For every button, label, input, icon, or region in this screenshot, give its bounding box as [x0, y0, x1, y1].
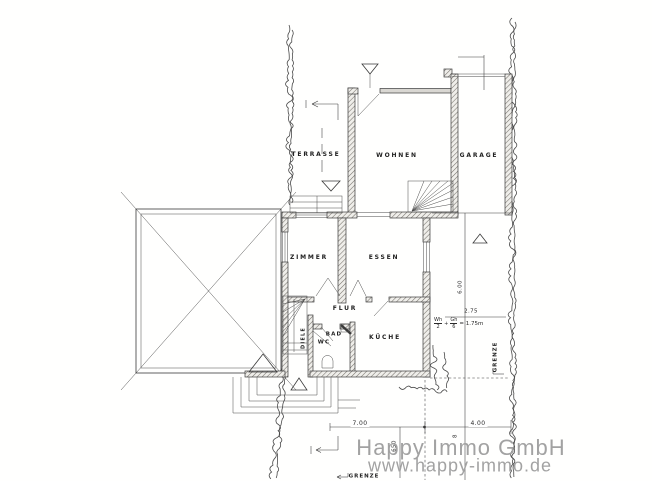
- terrace-entry-arrow: [306, 100, 338, 172]
- room-label-diele: DIELE: [302, 327, 307, 349]
- walls-upper-block: [348, 69, 512, 215]
- extension-outline: [121, 192, 296, 390]
- dimension-6m: 6.00: [458, 280, 464, 294]
- watermark-url: www.happy-immo.de: [368, 456, 552, 477]
- garage-triangle-icon: [473, 234, 487, 243]
- formula-fraction-gh: Gh6: [450, 318, 457, 330]
- grenze-label-right: GRENZE: [493, 342, 499, 373]
- grenze-arrow: [337, 473, 348, 479]
- dimension-7m: 7.00: [351, 421, 370, 427]
- formula-fraction-wh: Wh2: [434, 318, 442, 330]
- ramp-triangle-icon: [249, 354, 277, 372]
- hedge-left: [286, 25, 294, 205]
- setback-formula: Wh2 + Gh6 = 1.75m: [434, 318, 483, 330]
- room-label-terrasse: TERRASSE: [292, 152, 341, 158]
- room-label-garage: GARAGE: [460, 153, 499, 159]
- dimension-4m: 4.00: [469, 421, 488, 427]
- main-entry-arrow: [311, 436, 338, 454]
- formula-plus: +: [444, 321, 448, 327]
- floorplan-drawing: [0, 0, 652, 481]
- room-label-zimmer: ZIMMER: [290, 255, 328, 261]
- dimension-275: 2.75: [464, 309, 478, 315]
- steps-triangle-icon: [291, 378, 307, 390]
- room-label-essen: ESSEN: [369, 255, 400, 261]
- hedge-bottom-left: [269, 368, 286, 479]
- room-label-kueche: KÜCHE: [369, 335, 401, 341]
- room-label-wc: WC: [318, 340, 331, 346]
- toilet-icon: [322, 356, 333, 368]
- floorplan-canvas: TERRASSE WOHNEN GARAGE ZIMMER ESSEN FLUR…: [0, 0, 652, 481]
- survey-marker-icon: [362, 64, 378, 74]
- wohnen-staircase: [408, 181, 453, 212]
- terrace-triangle-icon: [322, 181, 340, 191]
- formula-result: = 1.75m: [459, 321, 483, 327]
- room-label-wohnen: WOHNEN: [376, 153, 418, 159]
- room-label-flur: FLUR: [333, 306, 357, 312]
- dimension-lines: [330, 55, 512, 480]
- terrace-steps: [290, 196, 342, 213]
- room-label-bad: BAD: [326, 332, 343, 338]
- walls-lower-block: [245, 212, 458, 377]
